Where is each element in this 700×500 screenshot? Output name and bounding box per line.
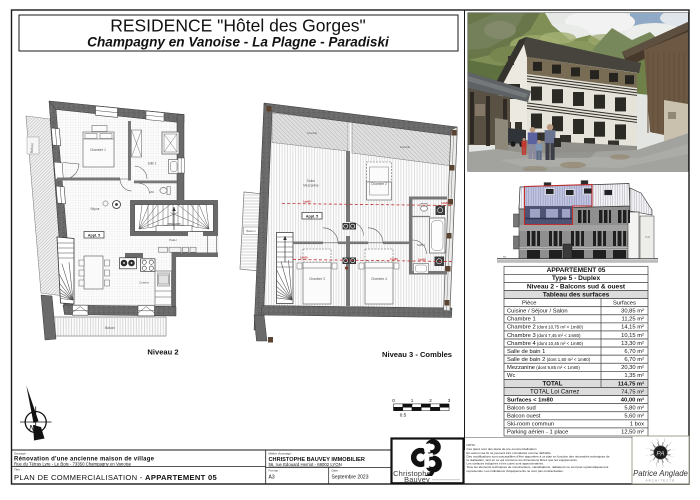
svg-text:représentés. Les indications d: représentés. Les indications d'équipemen… — [467, 469, 564, 473]
svg-text:Champagny en Vanoise - La Plag: Champagny en Vanoise - La Plagne - Parad… — [87, 35, 390, 50]
svg-text:Titre :: Titre : — [14, 468, 22, 472]
svg-text:Balcon: Balcon — [246, 229, 256, 233]
svg-text:Palier: Palier — [169, 238, 177, 242]
svg-text:Tableau des surfaces: Tableau des surfaces — [543, 291, 610, 298]
svg-text:1m80: 1m80 — [441, 201, 449, 205]
svg-text:Wc: Wc — [507, 373, 515, 379]
svg-text:Salle de bain 1: Salle de bain 1 — [507, 349, 545, 355]
svg-text:20,30 m²: 20,30 m² — [621, 365, 644, 371]
svg-text:SdB 1: SdB 1 — [148, 162, 157, 166]
svg-text:1m80: 1m80 — [418, 257, 426, 261]
svg-text:Wc: Wc — [150, 190, 155, 194]
svg-text:5,60 m²: 5,60 m² — [624, 414, 644, 420]
svg-text:RESIDENCE "Hôtel des Gorges": RESIDENCE "Hôtel des Gorges" — [110, 16, 366, 36]
svg-text:Parking aérien - 1 place: Parking aérien - 1 place — [507, 430, 568, 436]
svg-text:1,35 m²: 1,35 m² — [624, 373, 644, 379]
svg-text:1: 1 — [411, 398, 414, 403]
svg-text:1m80: 1m80 — [303, 200, 311, 204]
svg-text:Appt. 5: Appt. 5 — [306, 214, 318, 218]
svg-text:12,50 m²: 12,50 m² — [621, 430, 644, 436]
svg-text:1 box: 1 box — [630, 422, 644, 428]
svg-text:Type 5 - Duplex: Type 5 - Duplex — [552, 275, 601, 282]
svg-text:6,70 m²: 6,70 m² — [624, 349, 644, 355]
svg-text:Surfaces: Surfaces — [613, 300, 636, 306]
svg-text:Cuisine / Séjour / Salon: Cuisine / Séjour / Salon — [507, 309, 568, 315]
svg-text:Chambre 2: Chambre 2 — [371, 182, 387, 186]
svg-text:3: 3 — [448, 398, 451, 403]
svg-text:Patrice Anglade: Patrice Anglade — [633, 469, 688, 478]
svg-text:2: 2 — [429, 398, 432, 403]
svg-text:Chambre 4: Chambre 4 — [371, 277, 387, 281]
svg-text:Format :: Format : — [269, 469, 280, 473]
svg-text:11,25 m²: 11,25 m² — [622, 317, 645, 323]
svg-text:TOTAL Loi Carrez: TOTAL Loi Carrez — [530, 388, 579, 395]
svg-text:Niveau 2: Niveau 2 — [147, 348, 178, 357]
svg-text:Niveau 2 - Balcons sud & ouest: Niveau 2 - Balcons sud & ouest — [527, 283, 626, 290]
svg-text:6,70 m²: 6,70 m² — [624, 357, 644, 363]
svg-text:Ouvrage :: Ouvrage : — [14, 452, 27, 456]
svg-text:Balcon: Balcon — [30, 143, 35, 154]
svg-text:Comble: Comble — [307, 131, 318, 135]
svg-text:APPARTEMENT 05: APPARTEMENT 05 — [547, 267, 606, 274]
svg-text:114,75 m²: 114,75 m² — [618, 380, 644, 387]
svg-text:ARCHITECTE: ARCHITECTE — [646, 479, 676, 483]
svg-text:1m80: 1m80 — [300, 256, 308, 260]
svg-text:Mezzanine: Mezzanine — [303, 184, 319, 188]
svg-text:40,00 m²: 40,00 m² — [621, 396, 644, 403]
svg-text:Chambre 1: Chambre 1 — [507, 317, 536, 323]
svg-text:14,15 m²: 14,15 m² — [621, 325, 644, 331]
svg-text:10,15 m²: 10,15 m² — [621, 333, 644, 339]
svg-text:30,85 m²: 30,85 m² — [621, 309, 644, 315]
svg-text:N: N — [29, 423, 36, 433]
svg-text:Septembre 2023: Septembre 2023 — [332, 475, 369, 481]
svg-text:Niveau 3 - Combles: Niveau 3 - Combles — [382, 350, 452, 359]
svg-text:56, rue Edouard Herriot - 6900: 56, rue Edouard Herriot - 69002 LYON — [269, 462, 342, 467]
svg-text:Pièce: Pièce — [522, 300, 537, 306]
svg-text:13,30 m²: 13,30 m² — [621, 341, 644, 347]
svg-text:Cuisine: Cuisine — [139, 281, 149, 285]
svg-text:PLAN DE COMMERCIALISATION - AP: PLAN DE COMMERCIALISATION - APPARTEMENT … — [14, 473, 218, 482]
svg-text:Salon: Salon — [307, 179, 315, 183]
svg-text:Chambre 3: Chambre 3 — [309, 277, 325, 281]
svg-text:SdB 2: SdB 2 — [417, 243, 426, 247]
svg-text:TN: TN — [503, 256, 506, 259]
svg-text:0.5: 0.5 — [400, 413, 407, 418]
svg-text:5,80 m²: 5,80 m² — [624, 405, 644, 411]
svg-text:Chambre 1: Chambre 1 — [90, 148, 106, 152]
svg-text:Rue du Tétras Lyre - Le Bois -: Rue du Tétras Lyre - Le Bois - 73350 Cha… — [14, 461, 132, 466]
svg-text:Balcon: Balcon — [105, 326, 115, 330]
svg-text:Date :: Date : — [332, 469, 340, 473]
svg-text:Surfaces < 1m80: Surfaces < 1m80 — [507, 397, 553, 403]
svg-text:1m80: 1m80 — [390, 257, 398, 261]
svg-text:Balcon ouest: Balcon ouest — [507, 414, 541, 420]
svg-text:Appt. 5: Appt. 5 — [88, 233, 100, 237]
svg-text:PA: PA — [656, 450, 664, 457]
svg-text:Bauvey: Bauvey — [404, 475, 430, 484]
svg-text:Comble: Comble — [400, 145, 411, 149]
svg-text:Balcon sud: Balcon sud — [507, 405, 536, 411]
svg-text:Ski-room commun: Ski-room commun — [507, 422, 554, 428]
svg-text:Maître d'ouvrage :: Maître d'ouvrage : — [269, 452, 293, 456]
svg-text:74,75 m²: 74,75 m² — [621, 389, 644, 395]
svg-text:A3: A3 — [269, 475, 275, 481]
svg-text:Séjour: Séjour — [90, 207, 100, 211]
svg-text:TOTAL: TOTAL — [542, 380, 562, 387]
svg-text:0: 0 — [392, 398, 395, 403]
svg-text:RUE: RUE — [645, 236, 650, 239]
